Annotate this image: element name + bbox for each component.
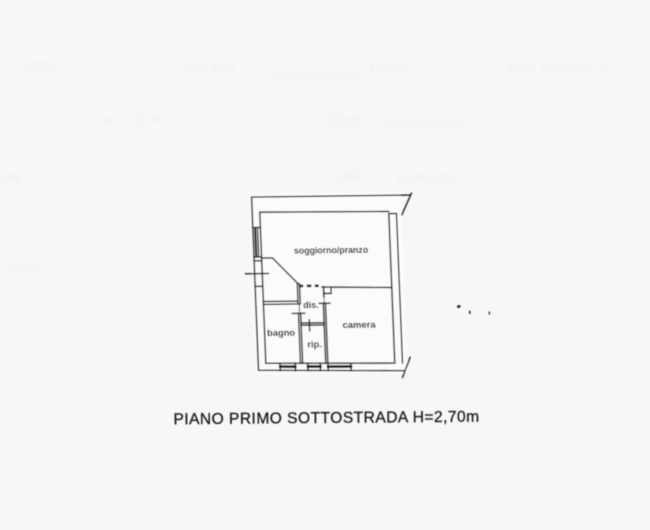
svg-text:w.17.03 m²: w.17.03 m² (101, 112, 166, 127)
svg-text:mq. 8.: mq. 8. (2, 169, 38, 184)
svg-text:SOUL: SOUL (328, 113, 363, 128)
svg-text:camera: camera (342, 319, 376, 330)
svg-text:..........: .......... (420, 64, 476, 79)
svg-text:+1: +1 (596, 57, 611, 72)
svg-text:10.464.03: 10.464.03 (396, 170, 454, 185)
svg-text:PIANO PRIMO SOTTOSTRADA H=2,70: PIANO PRIMO SOTTOSTRADA H=2,70m (173, 409, 479, 429)
svg-text:GAR.: GAR. (331, 169, 363, 184)
svg-text:MAGA: MAGA (370, 61, 409, 76)
svg-text:73.02 scal: 73.02 scal (176, 59, 235, 74)
svg-text:scala 12/3(3.4): scala 12/3(3.4) (506, 60, 592, 75)
svg-text:(45/3(2)..: (45/3(2).. (2, 258, 55, 273)
svg-text:~..=(2(S: ~..=(2(S (8, 58, 55, 73)
svg-text:bagno: bagno (267, 328, 296, 338)
svg-text:...: ... (152, 168, 163, 183)
svg-text:dis.: dis. (303, 300, 319, 310)
svg-text:soggiorno/pranzo: soggiorno/pranzo (294, 245, 369, 256)
svg-text:—..: —.. (126, 56, 146, 71)
svg-text:rip.: rip. (307, 339, 322, 349)
